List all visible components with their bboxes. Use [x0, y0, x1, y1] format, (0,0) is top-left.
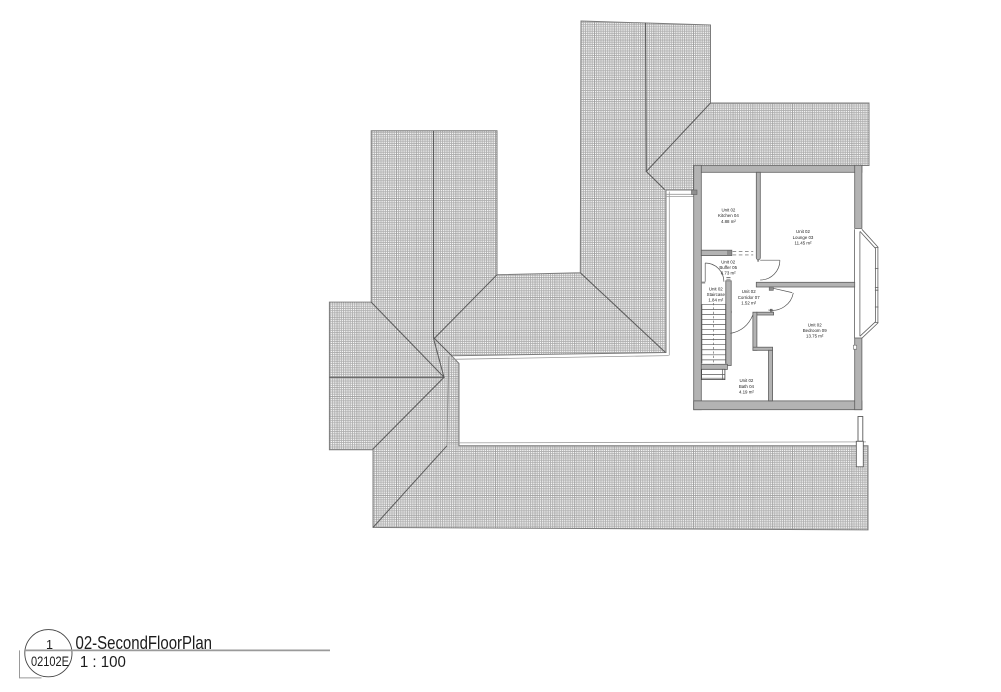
svg-text:Unit 02Bath 044.19 m²: Unit 02Bath 044.19 m² — [739, 378, 755, 394]
svg-text:1: 1 — [46, 638, 53, 652]
svg-text:Unit 02Buffer 050.73 m²: Unit 02Buffer 050.73 m² — [719, 259, 737, 275]
svg-text:1 : 100: 1 : 100 — [80, 654, 126, 671]
svg-text:02102E: 02102E — [31, 654, 69, 669]
svg-text:02-SecondFloorPlan: 02-SecondFloorPlan — [76, 633, 213, 653]
svg-text:Unit 02Staircase1.84 m²: Unit 02Staircase1.84 m² — [707, 287, 726, 303]
